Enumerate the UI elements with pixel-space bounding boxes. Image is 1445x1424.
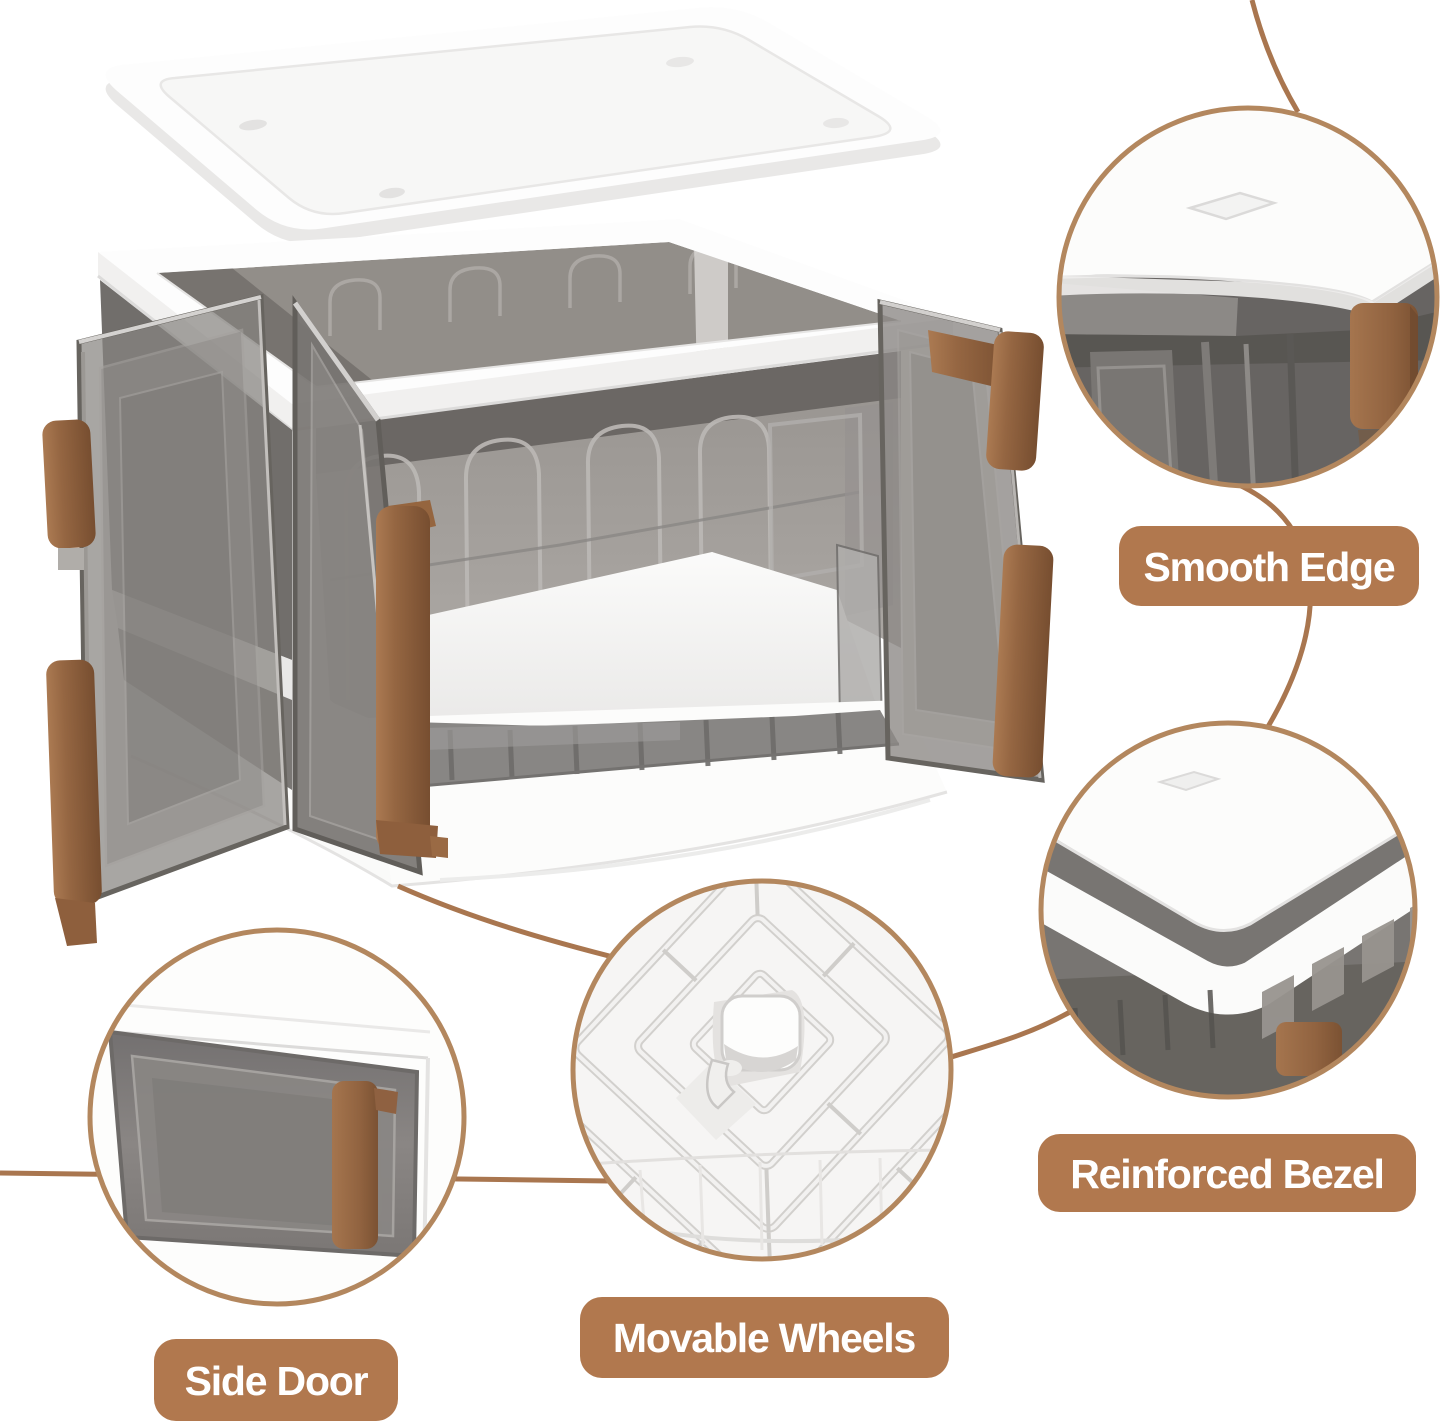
svg-text:Smooth Edge: Smooth Edge [1143, 544, 1394, 590]
svg-text:Movable Wheels: Movable Wheels [613, 1315, 916, 1361]
svg-text:Reinforced Bezel: Reinforced Bezel [1070, 1151, 1383, 1197]
svg-text:Side Door: Side Door [185, 1358, 369, 1404]
